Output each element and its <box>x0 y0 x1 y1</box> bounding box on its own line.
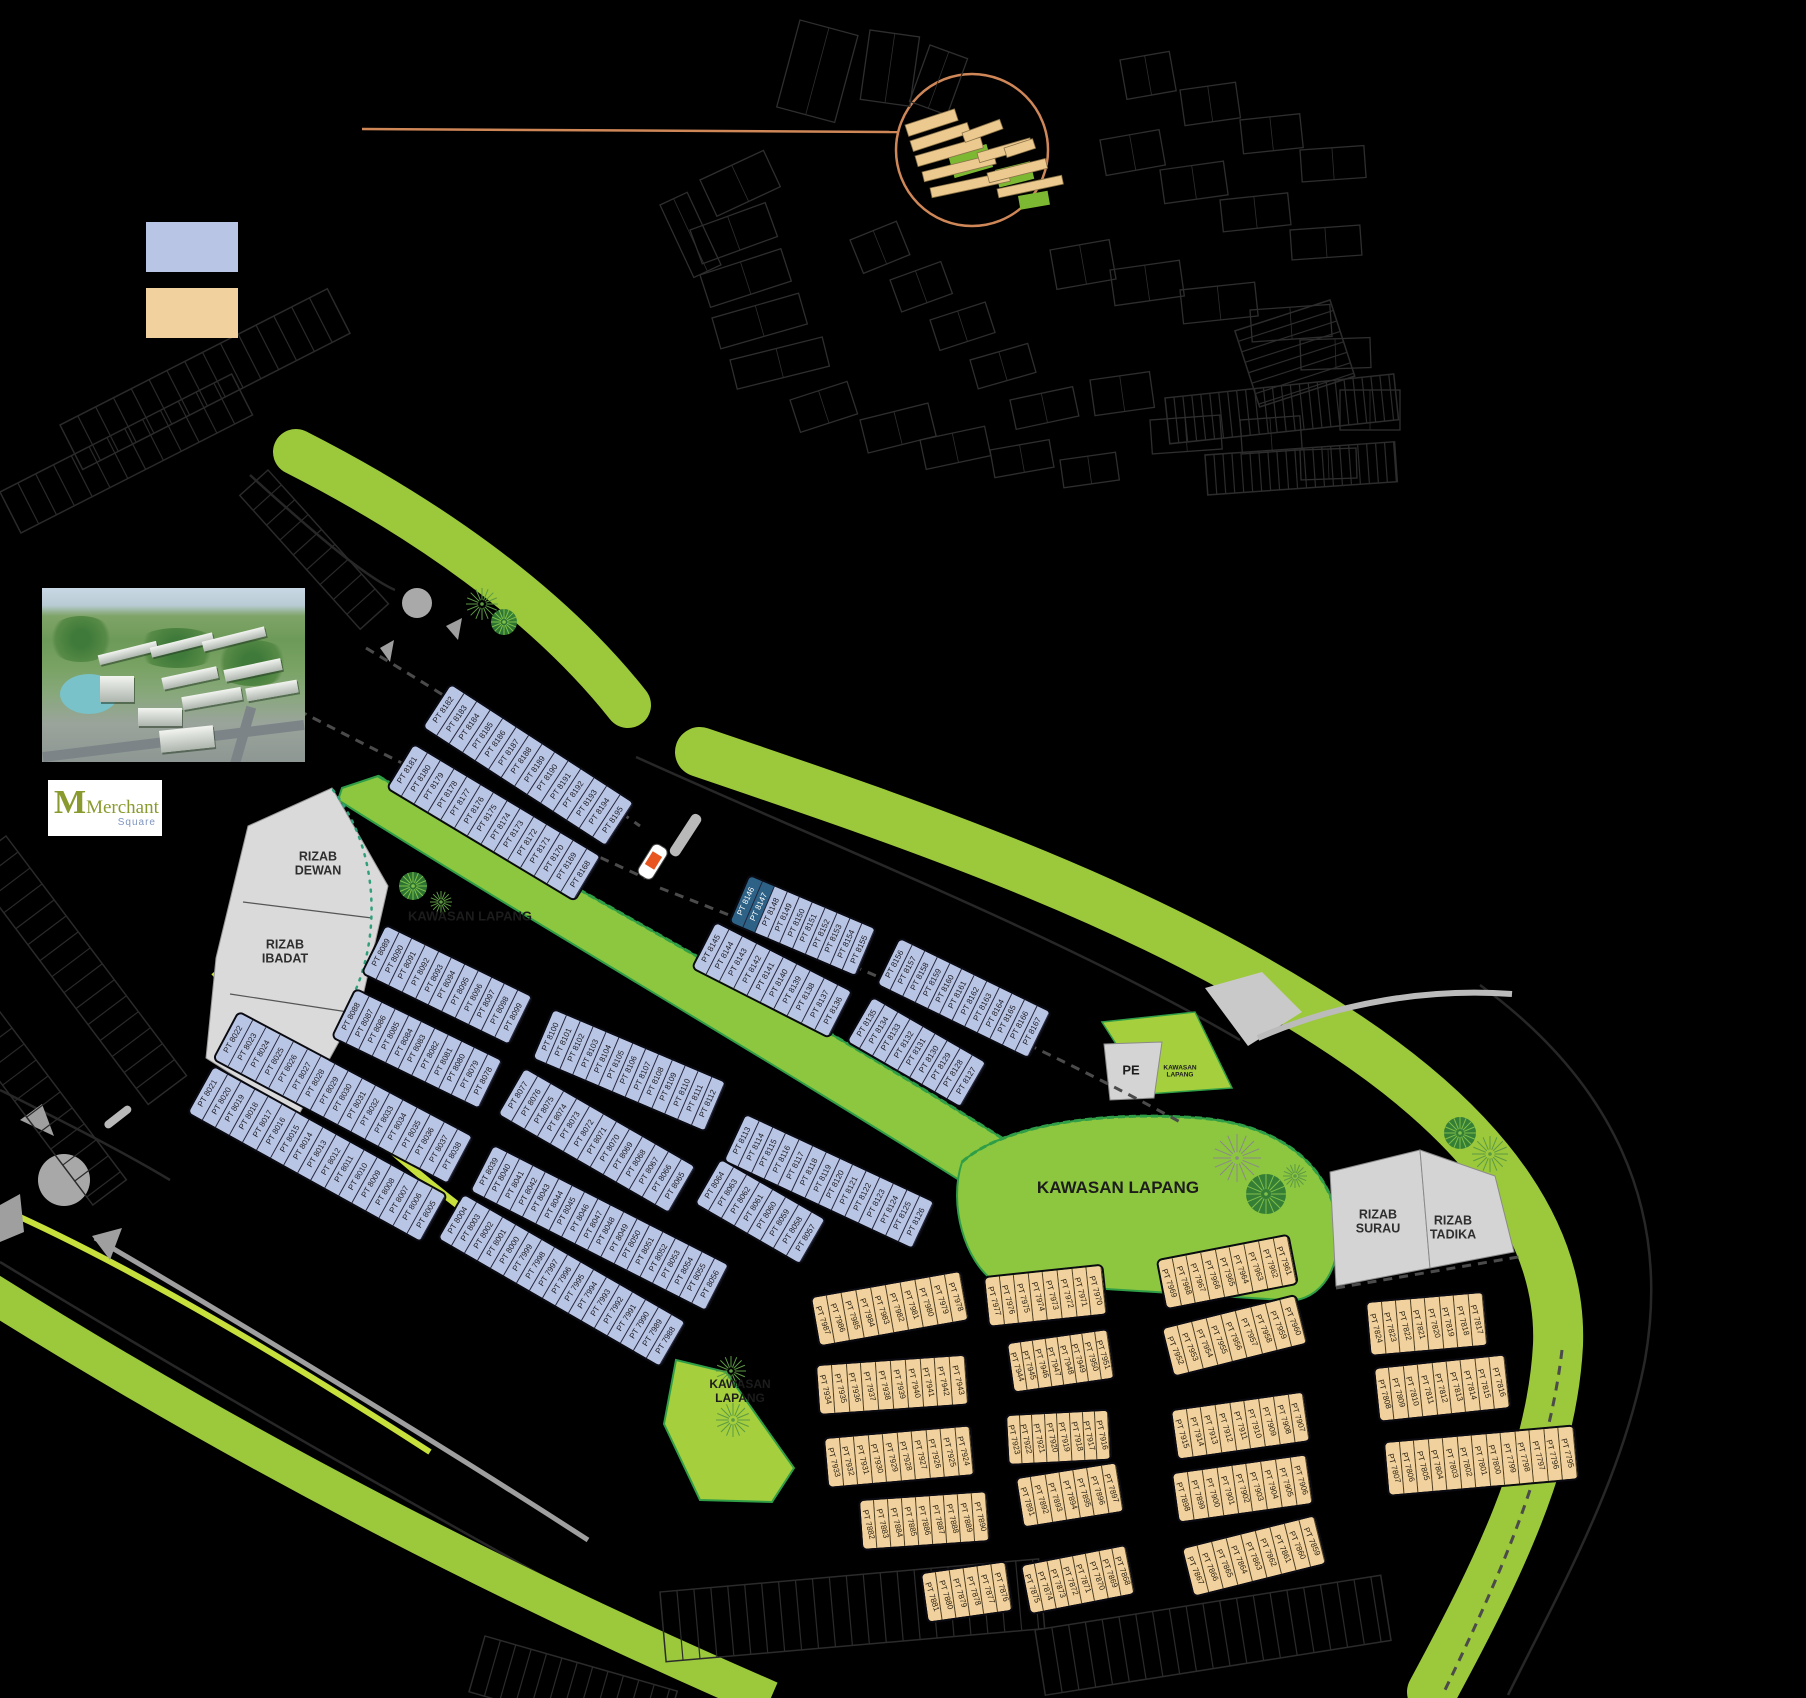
lot-number-label: PT 7936 <box>847 1372 863 1403</box>
lot-number-label: PT 7820 <box>1426 1308 1442 1339</box>
aerial-render-image <box>42 588 305 762</box>
rizab-ibadat-label: RIZABIBADAT <box>262 938 308 967</box>
lot-row-t10: PT 7882PT 7883PT 7884PT 7885PT 7886PT 78… <box>860 1492 989 1549</box>
locator-map-blocks <box>660 20 1400 488</box>
lot-row-t4: PT 7934PT 7935PT 7936PT 7937PT 7938PT 79… <box>817 1356 968 1414</box>
lot-number-label: PT 7807 <box>1386 1453 1402 1484</box>
tree-icon <box>1246 1174 1286 1214</box>
lot-number-label: PT 7943 <box>950 1364 966 1395</box>
logo-initial: M <box>54 784 86 821</box>
lot-number-label: PT 7822 <box>1397 1310 1413 1341</box>
lot-number-label: PT 7935 <box>832 1373 848 1404</box>
lot-number-label: PT 7932 <box>840 1445 856 1476</box>
master-plan-canvas: MMerchant Square RIZABDEWAN RIZABIBADAT … <box>0 0 1806 1698</box>
context-parking-comb <box>0 836 187 1104</box>
logo-title: Merchant <box>86 797 159 818</box>
tree-icon <box>1472 1136 1508 1172</box>
lot-row-t16: PT 7824PT 7823PT 7822PT 7821PT 7820PT 78… <box>1367 1293 1487 1355</box>
tree-icon <box>1444 1117 1476 1149</box>
lot-number-label: PT 7925 <box>941 1437 957 1468</box>
lot-number-label: PT 7927 <box>912 1439 928 1470</box>
lot-number-label: PT 7824 <box>1368 1313 1384 1344</box>
lot-number-label: PT 7906 <box>1292 1465 1310 1496</box>
lot-number-label: PT 7817 <box>1469 1304 1485 1335</box>
lot-row-t8: PT 7923PT 7922PT 7921PT 7920PT 7919PT 79… <box>1007 1411 1110 1464</box>
lot-number-label: PT 7887 <box>930 1504 946 1535</box>
lot-number-label: PT 7804 <box>1429 1449 1445 1480</box>
lot-number-label: PT 7940 <box>906 1368 922 1399</box>
lot-number-label: PT 7929 <box>883 1442 899 1473</box>
pe-label: PE <box>1122 1064 1139 1079</box>
lot-number-label: PT 7803 <box>1444 1448 1460 1479</box>
tree-icon <box>491 609 517 635</box>
lot-number-label: PT 7884 <box>888 1507 904 1538</box>
lot-number-label: PT 7818 <box>1454 1305 1470 1336</box>
lot-number-label: PT 7816 <box>1490 1366 1507 1397</box>
lot-number-label: PT 7797 <box>1530 1440 1546 1471</box>
kawasan-lapang-strip-label: KAWASAN LAPANG <box>408 910 532 925</box>
legend-swatch-blue-lots <box>146 222 238 272</box>
tree-icon <box>716 1403 750 1437</box>
lot-number-label: PT 7885 <box>902 1506 918 1537</box>
lot-number-label: PT 7882 <box>860 1509 876 1540</box>
legend-swatch-tan-lots <box>146 288 238 338</box>
lot-number-label: PT 7798 <box>1516 1441 1532 1472</box>
lot-number-label: PT 7801 <box>1472 1445 1488 1476</box>
rizab-dewan-label: RIZABDEWAN <box>295 850 342 879</box>
lot-number-label: PT 7883 <box>874 1508 890 1539</box>
lot-number-label: PT 7924 <box>956 1435 972 1466</box>
lot-number-label: PT 7886 <box>916 1505 932 1536</box>
lot-number-label: PT 7941 <box>921 1367 937 1398</box>
lot-number-label: PT 7819 <box>1440 1306 1456 1337</box>
tree-icon <box>399 872 427 900</box>
lot-number-label: PT 7928 <box>898 1440 914 1471</box>
lot-number-label: PT 7823 <box>1382 1311 1398 1342</box>
locator-highlight-cluster <box>905 109 1063 210</box>
lot-number-label: PT 7890 <box>972 1501 988 1532</box>
lot-number-label: PT 7795 <box>1559 1437 1575 1468</box>
context-parking-comb <box>0 374 253 533</box>
kawasan-lapang-pe-side-label: KAWASANLAPANG <box>1163 1065 1196 1080</box>
lot-number-label: PT 7799 <box>1501 1442 1517 1473</box>
tree-icon <box>1283 1164 1307 1188</box>
lot-number-label: PT 7942 <box>936 1366 952 1397</box>
tree-icon <box>1213 1134 1261 1182</box>
lot-number-label: PT 7805 <box>1415 1450 1431 1481</box>
lot-number-label: PT 7938 <box>877 1370 893 1401</box>
lot-number-label: PT 7933 <box>826 1447 842 1478</box>
lot-number-label: PT 7934 <box>818 1374 834 1405</box>
lot-number-label: PT 7907 <box>1290 1402 1308 1433</box>
lot-number-label: PT 7970 <box>1087 1275 1104 1306</box>
lot-number-label: PT 7930 <box>869 1443 885 1474</box>
rizab-tadika-label: RIZABTADIKA <box>1430 1214 1476 1243</box>
merchant-square-logo: MMerchant Square <box>48 780 162 836</box>
lot-number-label: PT 7937 <box>862 1371 878 1402</box>
lot-number-label: PT 7916 <box>1094 1419 1110 1450</box>
kawasan-lapang-main-label: KAWASAN LAPANG <box>1037 1178 1199 1198</box>
rizab-surau-label: RIZABSURAU <box>1356 1208 1400 1237</box>
lot-number-label: PT 7800 <box>1487 1444 1503 1475</box>
lot-number-label: PT 7939 <box>891 1369 907 1400</box>
lot-number-label: PT 7796 <box>1545 1439 1561 1470</box>
lot-number-label: PT 7926 <box>927 1438 943 1469</box>
lot-number-label: PT 7888 <box>944 1503 960 1534</box>
kawasan-lapang-corner-label: KAWASANLAPANG <box>709 1378 770 1406</box>
logo-subtitle: Square <box>54 817 156 828</box>
bus-stop-icon <box>636 842 669 882</box>
lot-pt-7916[interactable]: PT 7916 <box>1095 1411 1110 1460</box>
lot-number-label: PT 7806 <box>1400 1451 1416 1482</box>
context-parking-comb <box>1165 374 1399 444</box>
lot-number-label: PT 7889 <box>958 1502 974 1533</box>
lot-number-label: PT 7821 <box>1411 1309 1427 1340</box>
lot-number-label: PT 7802 <box>1458 1446 1474 1477</box>
lot-number-label: PT 7931 <box>854 1444 870 1475</box>
